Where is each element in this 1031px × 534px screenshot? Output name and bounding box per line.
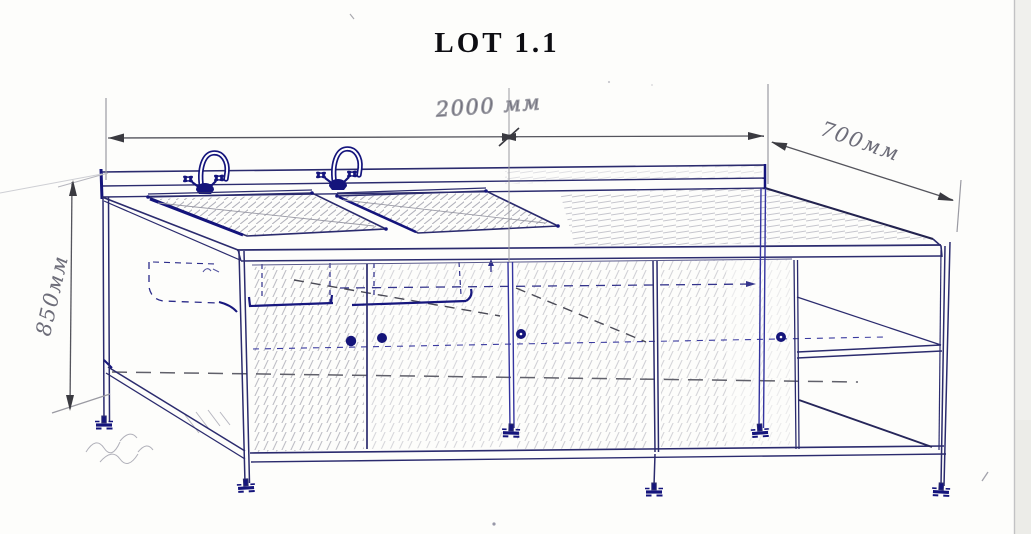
dimension-depth-label: 700мм bbox=[817, 117, 903, 167]
scanned-sketch-page: LOT 1.1 bbox=[0, 0, 1031, 534]
paper-speck bbox=[350, 14, 354, 19]
bottom-shelf-rear-edge bbox=[799, 400, 932, 447]
leg-back-left bbox=[103, 197, 110, 421]
countertop-hatch bbox=[560, 188, 930, 247]
door4b-hatch bbox=[726, 259, 790, 446]
sketch-canvas: LOT 1.1 bbox=[0, 0, 1031, 534]
door-knob bbox=[346, 336, 356, 346]
leg-right bbox=[941, 242, 950, 486]
extension-tick-bottom bbox=[52, 394, 110, 413]
door2-hatch bbox=[371, 263, 505, 449]
door1-hatch bbox=[254, 265, 364, 452]
dimension-height-label: 850мм bbox=[31, 253, 73, 339]
left-bottom-rail bbox=[108, 367, 245, 451]
dimension-height: 850мм bbox=[0, 173, 110, 413]
door-knob bbox=[377, 333, 387, 343]
middle-shelf bbox=[797, 345, 942, 358]
adjustable-foot bbox=[932, 483, 951, 496]
adjustable-foot bbox=[645, 483, 663, 496]
adjustable-foot bbox=[95, 416, 113, 429]
shelf-section bbox=[797, 297, 942, 447]
paper-speck bbox=[492, 522, 495, 525]
leg-middle-hidden bbox=[508, 262, 514, 428]
extension-line bbox=[957, 180, 961, 232]
paper-speck bbox=[651, 84, 653, 86]
panel-scribbles bbox=[185, 410, 230, 433]
drawing-title: LOT 1.1 bbox=[434, 27, 559, 59]
dimension-line bbox=[108, 136, 764, 138]
pencil-note-squiggle bbox=[203, 269, 219, 272]
adjustable-foot bbox=[237, 479, 256, 492]
dimension-line bbox=[70, 182, 72, 409]
floor-scribbles bbox=[86, 434, 153, 463]
door4-hatch bbox=[661, 260, 726, 447]
backsplash-left-cap bbox=[101, 169, 102, 199]
door3-hatch bbox=[517, 261, 649, 449]
paper-speck bbox=[982, 472, 988, 481]
paper-speck bbox=[608, 81, 610, 83]
shelf-divider bbox=[794, 260, 799, 449]
dimension-width-label: 2000 мм bbox=[434, 90, 542, 121]
faucet-left bbox=[182, 153, 227, 194]
leg-front-middle bbox=[653, 261, 659, 486]
